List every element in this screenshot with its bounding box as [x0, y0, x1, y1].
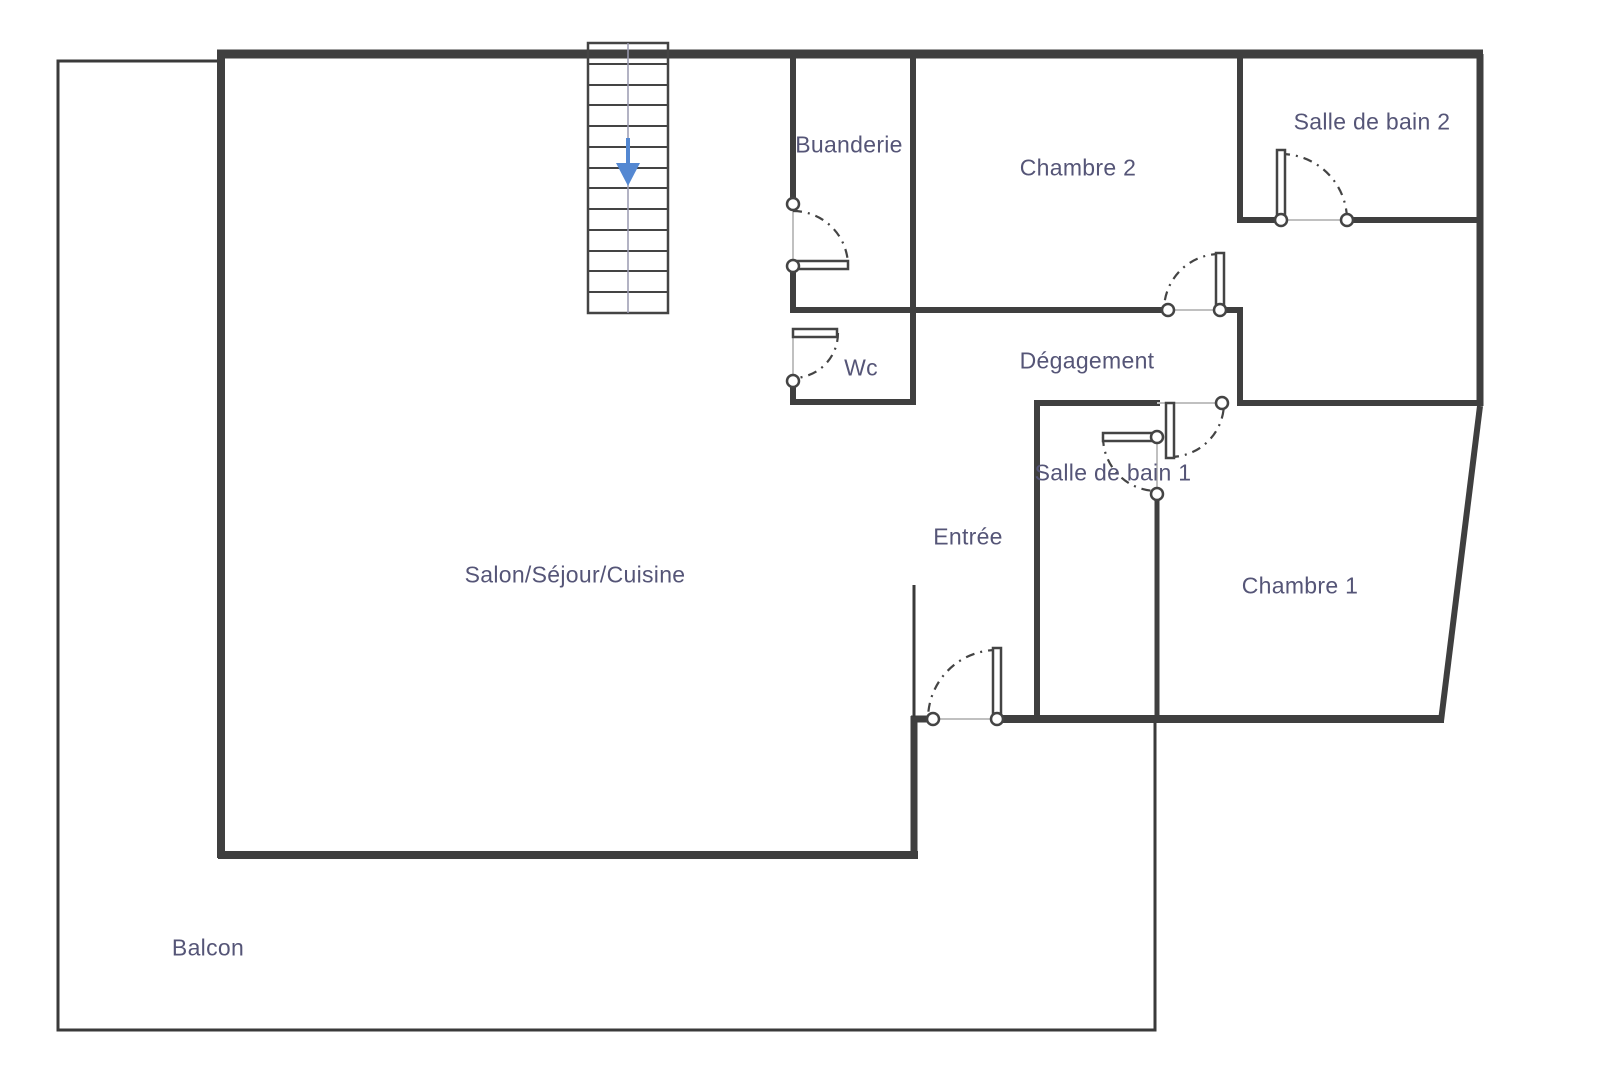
entree-door-leaf	[993, 648, 1001, 719]
stairs-down-arrow-icon	[616, 138, 640, 186]
buanderie-door-arc	[793, 211, 848, 266]
outer-walls	[217, 50, 1483, 858]
room-label-sdb1: Salle de bain 1	[1035, 460, 1192, 487]
room-label-chambre1: Chambre 1	[1242, 573, 1358, 600]
wc-door-leaf	[793, 329, 837, 337]
floor-plan-drawing	[0, 0, 1606, 1070]
room-label-balcon: Balcon	[172, 935, 244, 962]
chambre1-door-leaf	[1166, 403, 1174, 458]
sdb2-door-arc	[1281, 154, 1347, 220]
room-label-salon: Salon/Séjour/Cuisine	[465, 562, 686, 589]
wall-right-slanted	[1441, 406, 1480, 721]
chambre2-door-leaf	[1216, 253, 1224, 310]
wc-door-arc	[793, 333, 838, 378]
room-label-wc: Wc	[844, 355, 878, 382]
floor-plan: Buanderie Chambre 2 Salle de bain 2 Wc D…	[0, 0, 1606, 1070]
room-label-buanderie: Buanderie	[795, 132, 903, 159]
sdb1-door-leaf	[1103, 433, 1157, 441]
sdb2-door-leaf	[1277, 150, 1285, 220]
room-label-entree: Entrée	[933, 524, 1003, 551]
room-label-sdb2: Salle de bain 2	[1294, 109, 1451, 136]
chambre1-door-arc	[1170, 403, 1224, 457]
buanderie-door-leaf	[793, 261, 848, 269]
staircase	[588, 43, 668, 313]
room-label-chambre2: Chambre 2	[1020, 155, 1136, 182]
chambre2-door-arc	[1164, 254, 1220, 310]
room-label-degagement: Dégagement	[1020, 348, 1155, 375]
door-arcs	[793, 154, 1347, 719]
entree-door-arc	[928, 650, 997, 719]
